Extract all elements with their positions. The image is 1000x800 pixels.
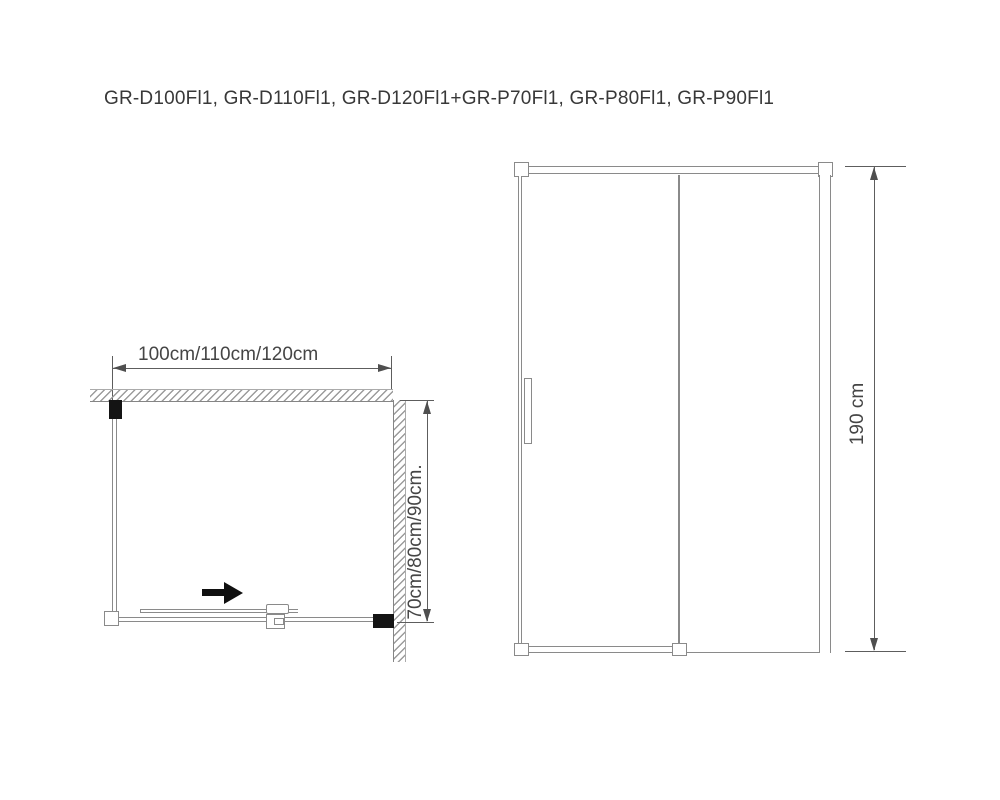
- plan-width-dimension-line: [113, 368, 391, 369]
- plan-width-dimension-label: 100cm/110cm/120cm: [138, 344, 318, 366]
- bottom-rail-front: [515, 646, 686, 653]
- slide-direction-arrow-icon: [224, 582, 243, 604]
- dim-arrow-up-icon: [423, 401, 431, 414]
- corner-connector: [104, 611, 119, 626]
- door-clamp-top: [266, 604, 289, 614]
- dim-arrow-down-icon: [870, 638, 878, 651]
- plan-depth-dimension-label: 70cm/80cm/90cm.: [405, 457, 427, 627]
- dim-arrow-right-icon: [378, 364, 391, 372]
- door-handle: [524, 378, 532, 444]
- plan-extension-line-right: [391, 356, 392, 390]
- dim-arrow-left-icon: [113, 364, 126, 372]
- panel-overlap-edge: [678, 175, 680, 646]
- drawing-page: GR-D100Fl1, GR-D110Fl1, GR-D120Fl1+GR-P7…: [0, 0, 1000, 800]
- bottom-rail: [117, 617, 373, 622]
- bottom-rail-cap-right: [672, 643, 687, 656]
- side-panel-edge: [112, 419, 117, 613]
- model-title: GR-D100Fl1, GR-D110Fl1, GR-D120Fl1+GR-P7…: [104, 88, 774, 110]
- door-clamp-notch: [274, 618, 284, 625]
- top-rail: [515, 166, 829, 174]
- dim-arrow-up-icon: [870, 167, 878, 180]
- front-height-dimension-label: 190 cm: [847, 374, 869, 454]
- right-frame-profile: [819, 175, 831, 653]
- wall-top-hatched: [90, 389, 393, 402]
- bottom-rail-cap-left: [514, 643, 529, 656]
- front-height-dimension-line: [874, 167, 875, 650]
- plan-depth-dimension-line: [427, 401, 428, 621]
- wall-profile-top-left: [109, 400, 122, 419]
- front-height-tick-bottom: [845, 651, 906, 652]
- top-rail-cap-left: [514, 162, 529, 177]
- door-left-edge: [518, 176, 522, 647]
- wall-profile-bottom-right: [373, 614, 394, 628]
- fixed-panel-bottom-edge: [686, 652, 820, 653]
